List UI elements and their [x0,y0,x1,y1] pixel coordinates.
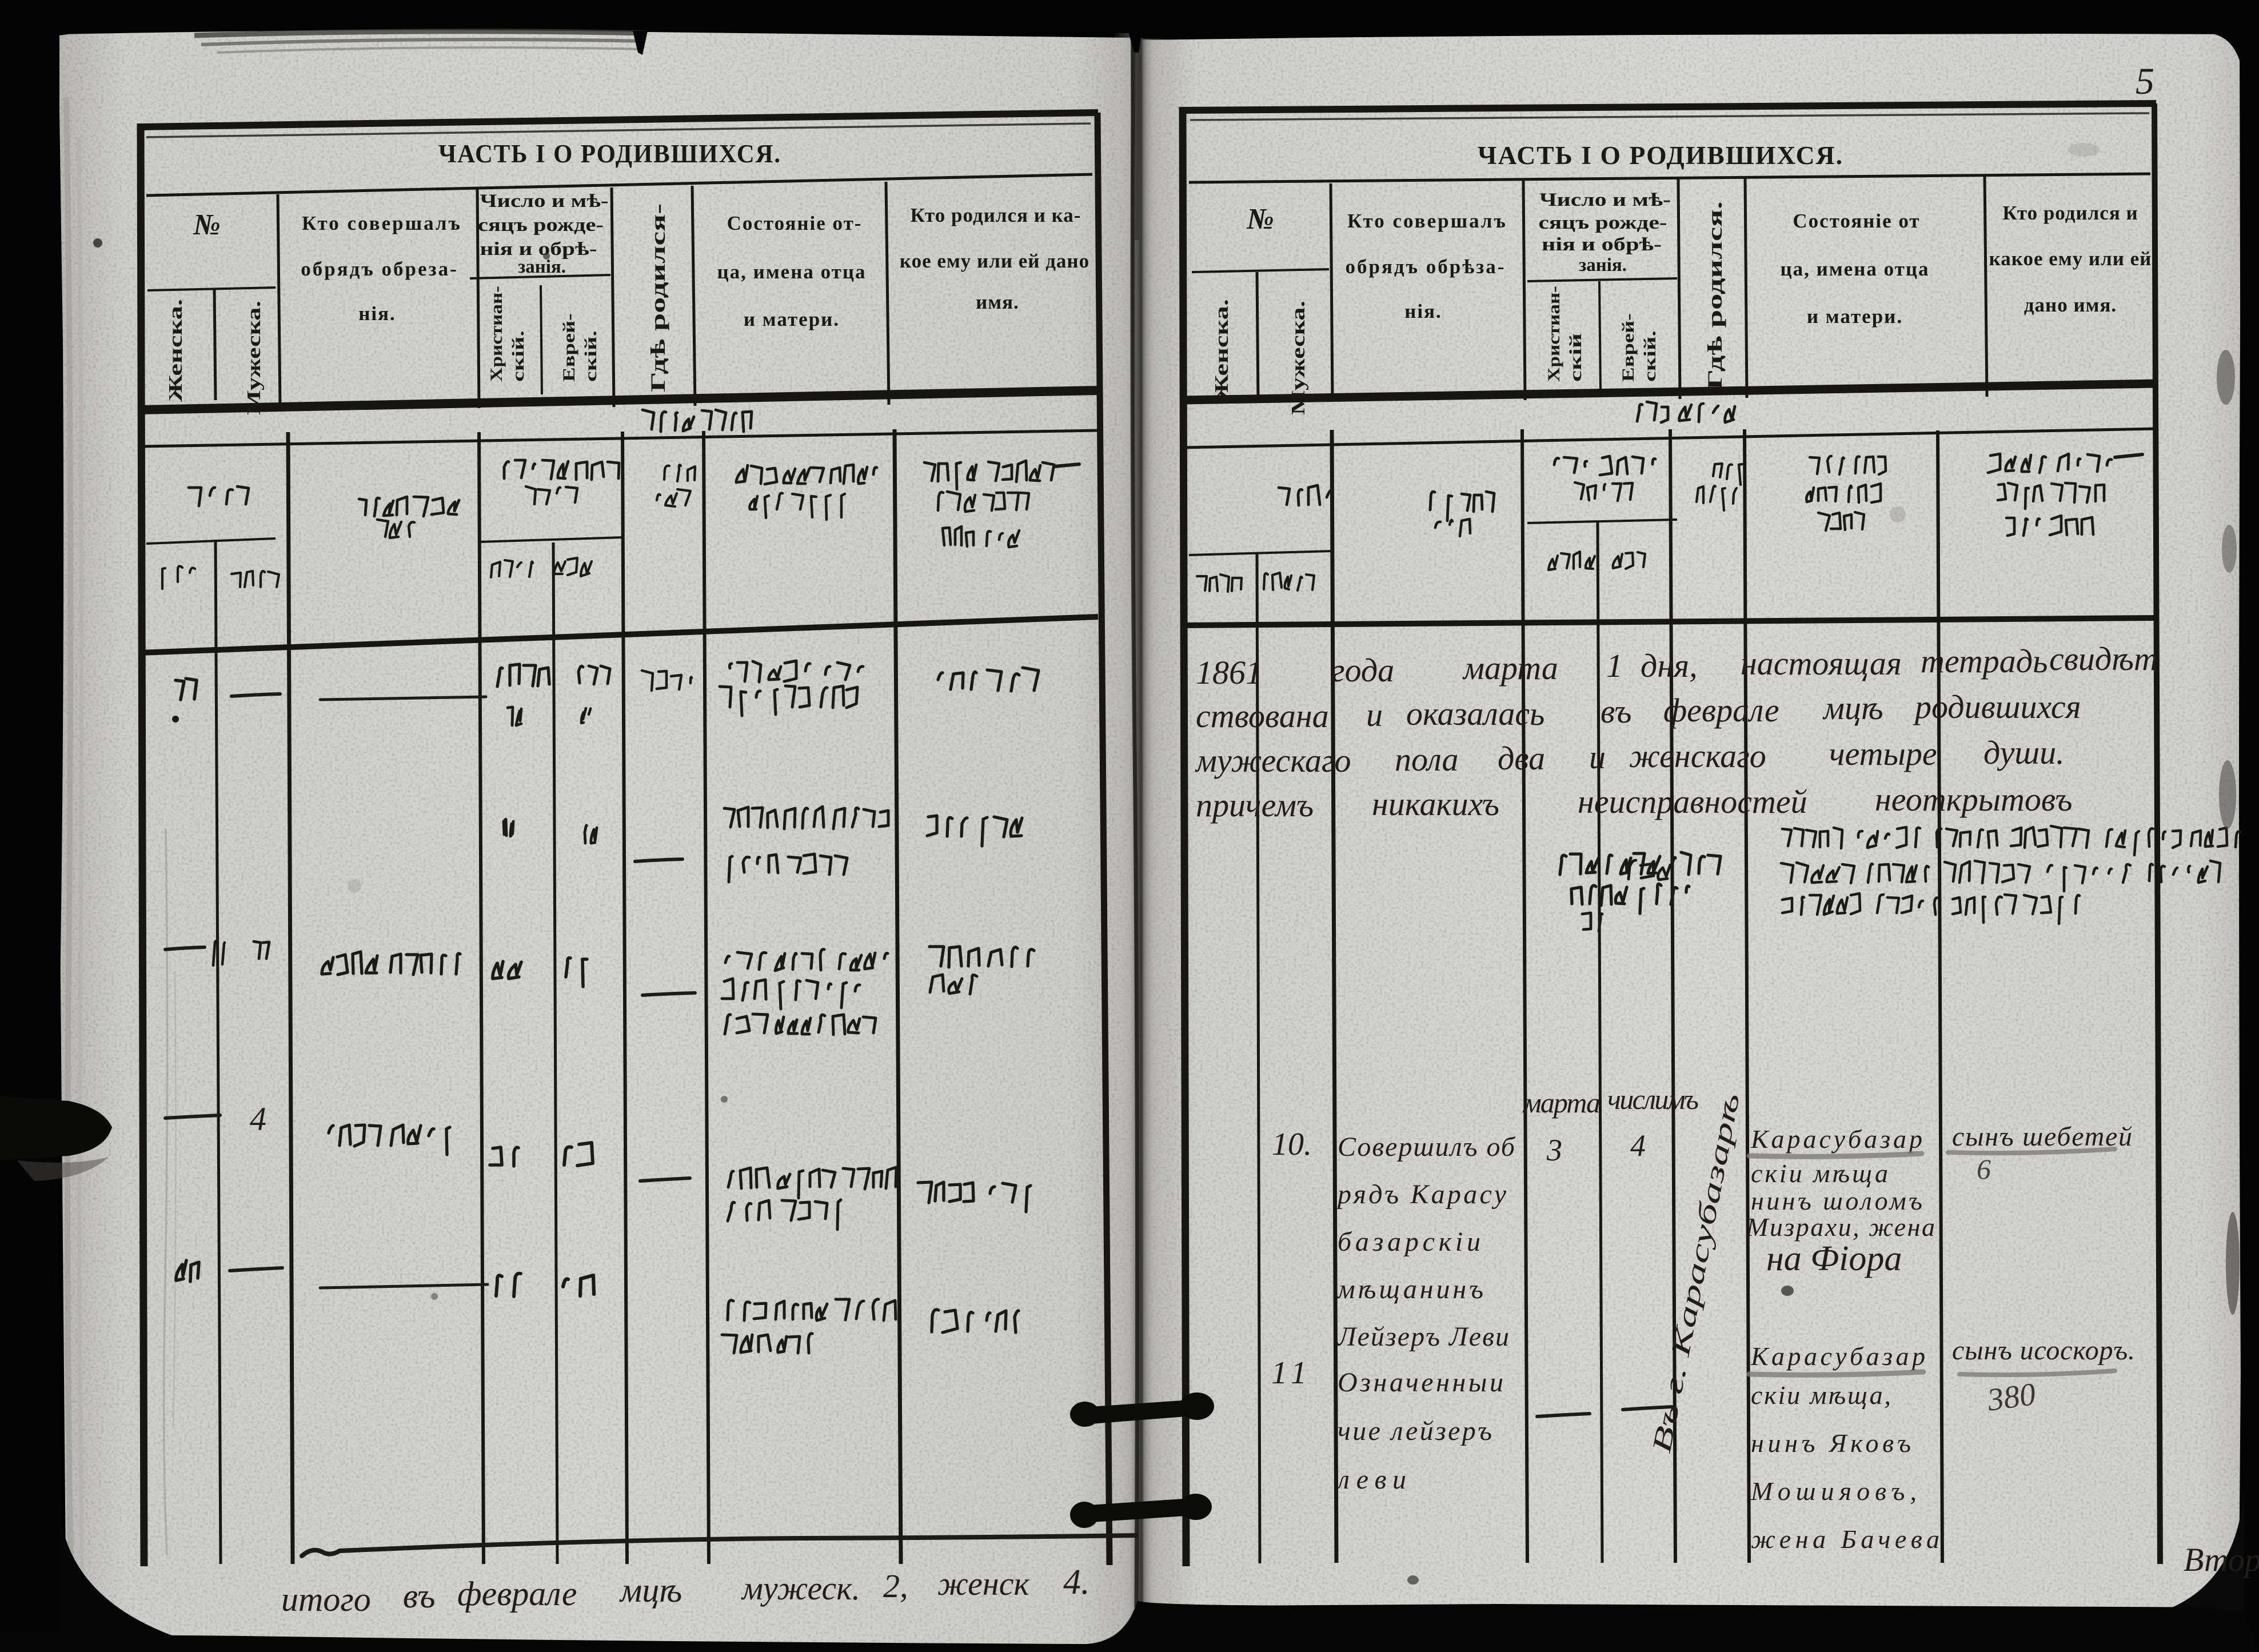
svg-text:нія.: нія. [358,302,396,325]
svg-text:и: и [1366,696,1383,733]
svg-text:4.: 4. [1063,1563,1090,1602]
svg-text:въ: въ [1601,693,1632,730]
svg-text:Состояніе от-: Состояніе от- [727,212,863,234]
svg-text:тетрадь: тетрадь [1921,643,2048,680]
svg-text:сяцъ рожде-: сяцъ рожде- [1539,213,1667,233]
svg-text:мцѣ: мцѣ [1822,689,1883,727]
svg-text:и матери.: и матери. [744,308,840,330]
svg-text:феврале: феврале [1663,692,1779,729]
svg-text:года: года [1332,652,1394,689]
svg-text:женск: женск [937,1565,1029,1602]
svg-text:оказалась: оказалась [1406,695,1544,732]
svg-text:нинъ Яковъ: нинъ Яковъ [1751,1428,1911,1458]
svg-text:дано имя.: дано имя. [2024,294,2117,316]
svg-text:Мужеска.: Мужеска. [244,301,265,415]
svg-text:и матери.: и матери. [1807,305,1903,328]
svg-text:Состояніе от: Состояніе от [1793,210,1920,232]
svg-text:какое ему или ей: какое ему или ей [1989,248,2152,270]
svg-text:свидѣт: свидѣт [2049,640,2158,677]
svg-text:жена Бачева: жена Бачева [1751,1525,1939,1554]
svg-text:1861: 1861 [1196,654,1262,691]
svg-text:ствована: ствована [1196,697,1329,735]
svg-text:Христиан-: Христиан- [487,286,506,382]
svg-text:феврале: феврале [457,1575,577,1613]
svg-text:Христиан-: Христиан- [1544,286,1563,382]
svg-text:числимъ: числимъ [1607,1083,1699,1115]
svg-text:Совершилъ об: Совершилъ об [1338,1132,1516,1162]
svg-text:Гдѣ родился.: Гдѣ родился. [1703,201,1726,390]
svg-text:обрядъ обрѣза-: обрядъ обрѣза- [1346,256,1506,278]
svg-text:рядъ Карасу: рядъ Карасу [1336,1179,1507,1210]
svg-text:итого: итого [281,1581,371,1618]
svg-text:четыре: четыре [1829,735,1937,772]
svg-text:скіи мѣща,: скіи мѣща, [1751,1380,1891,1410]
svg-text:скіи мѣща: скіи мѣща [1751,1159,1888,1188]
svg-text:Мужеска.: Мужеска. [1288,301,1309,415]
svg-text:ЧАСТЬ I О РОДИВШИХСЯ.: ЧАСТЬ I О РОДИВШИХСЯ. [1478,141,1843,170]
svg-text:№: № [193,209,221,241]
svg-text:имя.: имя. [976,291,1019,313]
svg-text:на Фіора: на Фіора [1766,1239,1902,1278]
svg-text:Число и мѣ-: Число и мѣ- [1539,190,1671,210]
svg-text:скій.: скій. [509,330,528,382]
svg-text:Гдѣ родился-: Гдѣ родился- [646,203,669,392]
svg-text:нія.: нія. [1404,300,1442,322]
svg-text:дня,: дня, [1641,647,1698,684]
svg-text:мцѣ: мцѣ [619,1571,682,1609]
svg-text:Второ: Второ [2184,1541,2259,1578]
svg-text:пола: пола [1395,741,1459,778]
svg-text:въ: въ [403,1577,435,1615]
svg-text:сяцъ рожде-: сяцъ рожде- [478,215,604,236]
svg-text:родившихся: родившихся [1913,688,2081,725]
svg-text:кое ему или ей дано: кое ему или ей дано [900,250,1089,272]
svg-text:базарскіи: базарскіи [1338,1227,1480,1257]
svg-text:никакихъ: никакихъ [1372,785,1499,823]
svg-text:скій.: скій. [1641,330,1659,382]
svg-text:причемъ: причемъ [1196,787,1314,824]
svg-text:скій.: скій. [581,330,600,382]
svg-text:4: 4 [250,1100,266,1138]
svg-text:4: 4 [1630,1128,1646,1163]
svg-text:Кто совершалъ: Кто совершалъ [302,212,462,234]
svg-text:два: два [1498,740,1545,777]
svg-text:Лейзеръ Леви: Лейзеръ Леви [1336,1322,1509,1352]
svg-text:ЧАСТЬ I О РОДИВШИХСЯ.: ЧАСТЬ I О РОДИВШИХСЯ. [438,139,781,168]
svg-text:марта: марта [1522,1087,1601,1119]
svg-text:Кто родился и ка-: Кто родился и ка- [911,204,1081,226]
svg-text:женскаго: женскаго [1629,737,1766,775]
svg-text:мѣщанинъ: мѣщанинъ [1336,1274,1483,1304]
svg-text:10.: 10. [1272,1127,1312,1162]
svg-text:Женска.: Женска. [165,299,186,402]
svg-text:Карасубазар: Карасубазар [1750,1342,1925,1371]
svg-text:неисправностей: неисправностей [1578,783,1807,820]
svg-text:нинъ шоломъ: нинъ шоломъ [1751,1186,1922,1215]
svg-text:Женска.: Женска. [1211,299,1232,402]
svg-text:души.: души. [1983,734,2065,771]
svg-text:сынъ исоскоръ.: сынъ исоскоръ. [1952,1335,2135,1366]
svg-text:380: 380 [1985,1376,2038,1418]
svg-text:Еврей-: Еврей- [560,313,578,382]
svg-text:6: 6 [1977,1153,1991,1185]
svg-text:№: № [1246,203,1274,236]
svg-text:5: 5 [2136,61,2154,102]
svg-text:неоткрытовъ: неоткрытовъ [1875,781,2072,818]
svg-text:Еврей-: Еврей- [1619,313,1638,382]
svg-text:настоящая: настоящая [1741,645,1902,682]
svg-text:мужескаго: мужескаго [1195,742,1351,779]
svg-text:и: и [1589,739,1606,776]
svg-text:ца, имена отца: ца, имена отца [717,261,866,283]
svg-text:3: 3 [1546,1133,1562,1167]
svg-text:марта: марта [1462,649,1558,687]
svg-text:Карасубазар: Карасубазар [1750,1124,1922,1154]
svg-text:Кто родился и: Кто родился и [2002,202,2138,224]
svg-text:Число и мѣ-: Число и мѣ- [480,191,609,212]
svg-text:скій: скій [1566,333,1585,382]
svg-text:сынъ шебетей: сынъ шебетей [1952,1122,2132,1152]
svg-text:мужеск.: мужеск. [741,1570,860,1607]
svg-text:занія.: занія. [518,257,566,277]
svg-text:Кто совершалъ: Кто совершалъ [1347,210,1507,232]
svg-text:чие лейзеръ: чие лейзеръ [1338,1416,1492,1446]
svg-text:ца, имена отца: ца, имена отца [1780,258,1929,280]
svg-text:обрядъ обреза-: обрядъ обреза- [301,258,458,280]
svg-text:занія.: занія. [1579,255,1627,276]
svg-text:1: 1 [1606,647,1623,684]
svg-text:2,: 2, [883,1567,908,1605]
svg-text:нія и обрѣ-: нія и обрѣ- [1542,234,1662,255]
